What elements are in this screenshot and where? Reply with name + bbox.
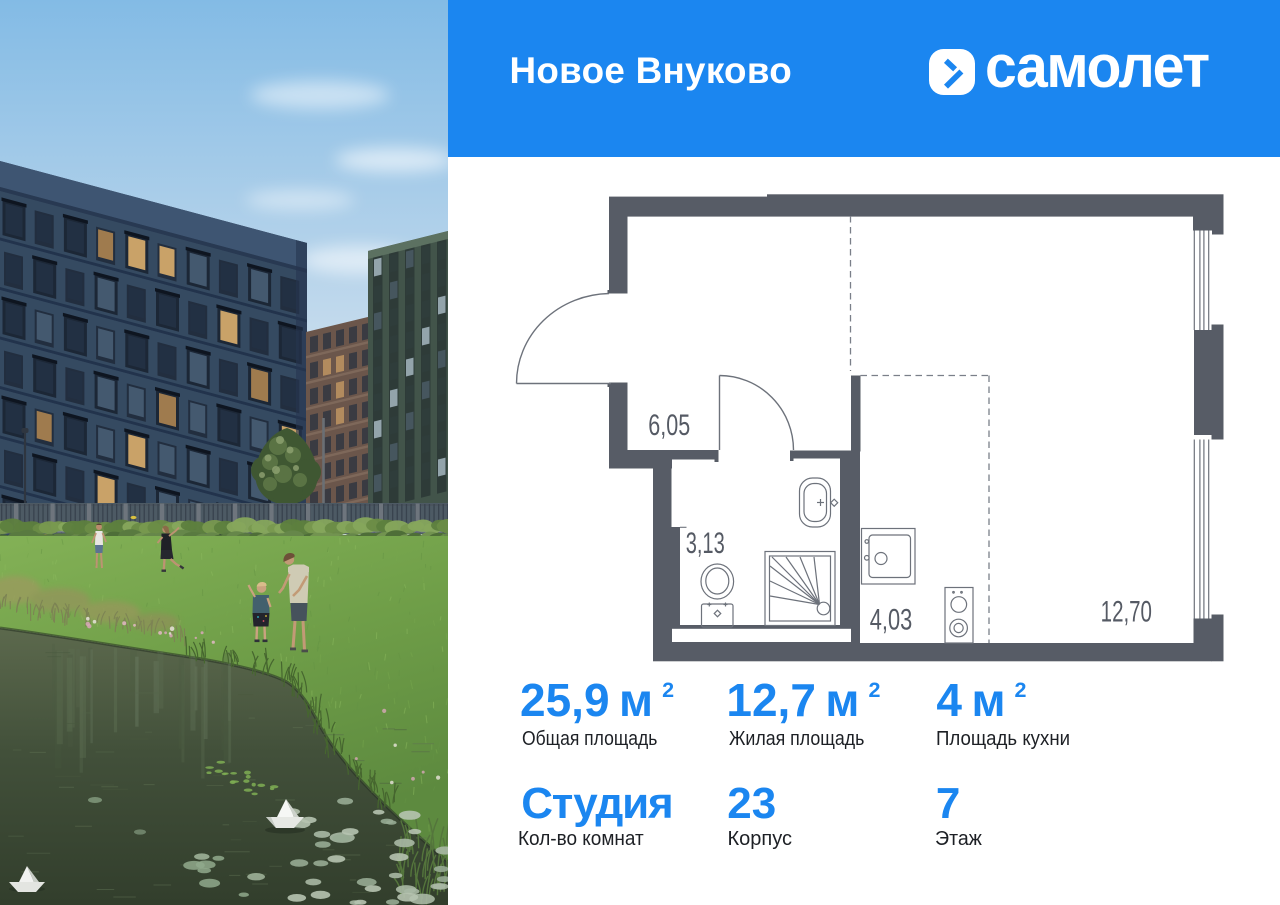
svg-text:4,03: 4,03 <box>870 604 912 636</box>
svg-text:12,70: 12,70 <box>1101 596 1152 629</box>
svg-text:3,13: 3,13 <box>686 527 725 560</box>
svg-text:6,05: 6,05 <box>648 410 690 442</box>
